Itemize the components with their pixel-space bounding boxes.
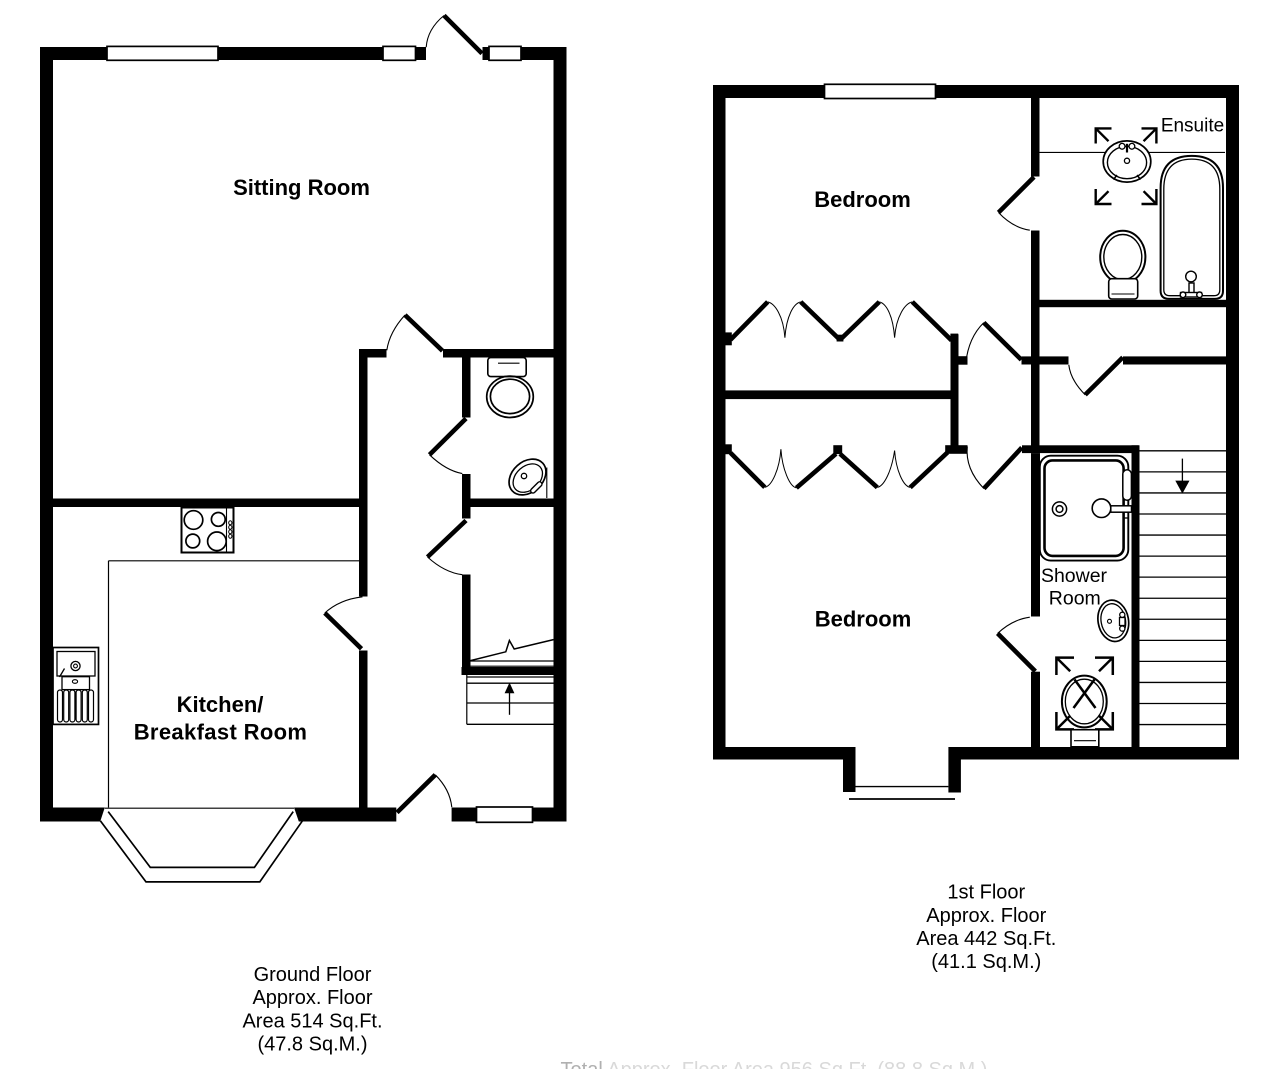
svg-text:Kitchen/: Kitchen/ bbox=[177, 692, 264, 717]
svg-text:1st Floor: 1st Floor bbox=[947, 882, 1025, 904]
svg-text:(41.1 Sq.M.): (41.1 Sq.M.) bbox=[931, 951, 1041, 973]
svg-text:Room: Room bbox=[1049, 587, 1101, 609]
svg-text:Bedroom: Bedroom bbox=[815, 607, 912, 632]
svg-text:Bedroom: Bedroom bbox=[814, 187, 911, 212]
svg-text:Shower: Shower bbox=[1041, 565, 1108, 587]
svg-text:(47.8 Sq.M.): (47.8 Sq.M.) bbox=[257, 1034, 367, 1056]
svg-text:Area 442 Sq.Ft.: Area 442 Sq.Ft. bbox=[916, 928, 1056, 950]
svg-text:Approx. Floor: Approx. Floor bbox=[926, 905, 1046, 927]
svg-text:Ensuite: Ensuite bbox=[1161, 116, 1224, 137]
svg-text:Area 514 Sq.Ft.: Area 514 Sq.Ft. bbox=[242, 1010, 382, 1032]
svg-text:Ground Floor: Ground Floor bbox=[254, 964, 372, 986]
svg-text:Total Approx. Floor Area 956 S: Total Approx. Floor Area 956 Sq.Ft. (88.… bbox=[561, 1059, 988, 1069]
svg-text:Approx. Floor: Approx. Floor bbox=[252, 987, 372, 1009]
svg-text:Sitting Room: Sitting Room bbox=[233, 175, 370, 200]
svg-text:Breakfast Room: Breakfast Room bbox=[134, 720, 308, 745]
